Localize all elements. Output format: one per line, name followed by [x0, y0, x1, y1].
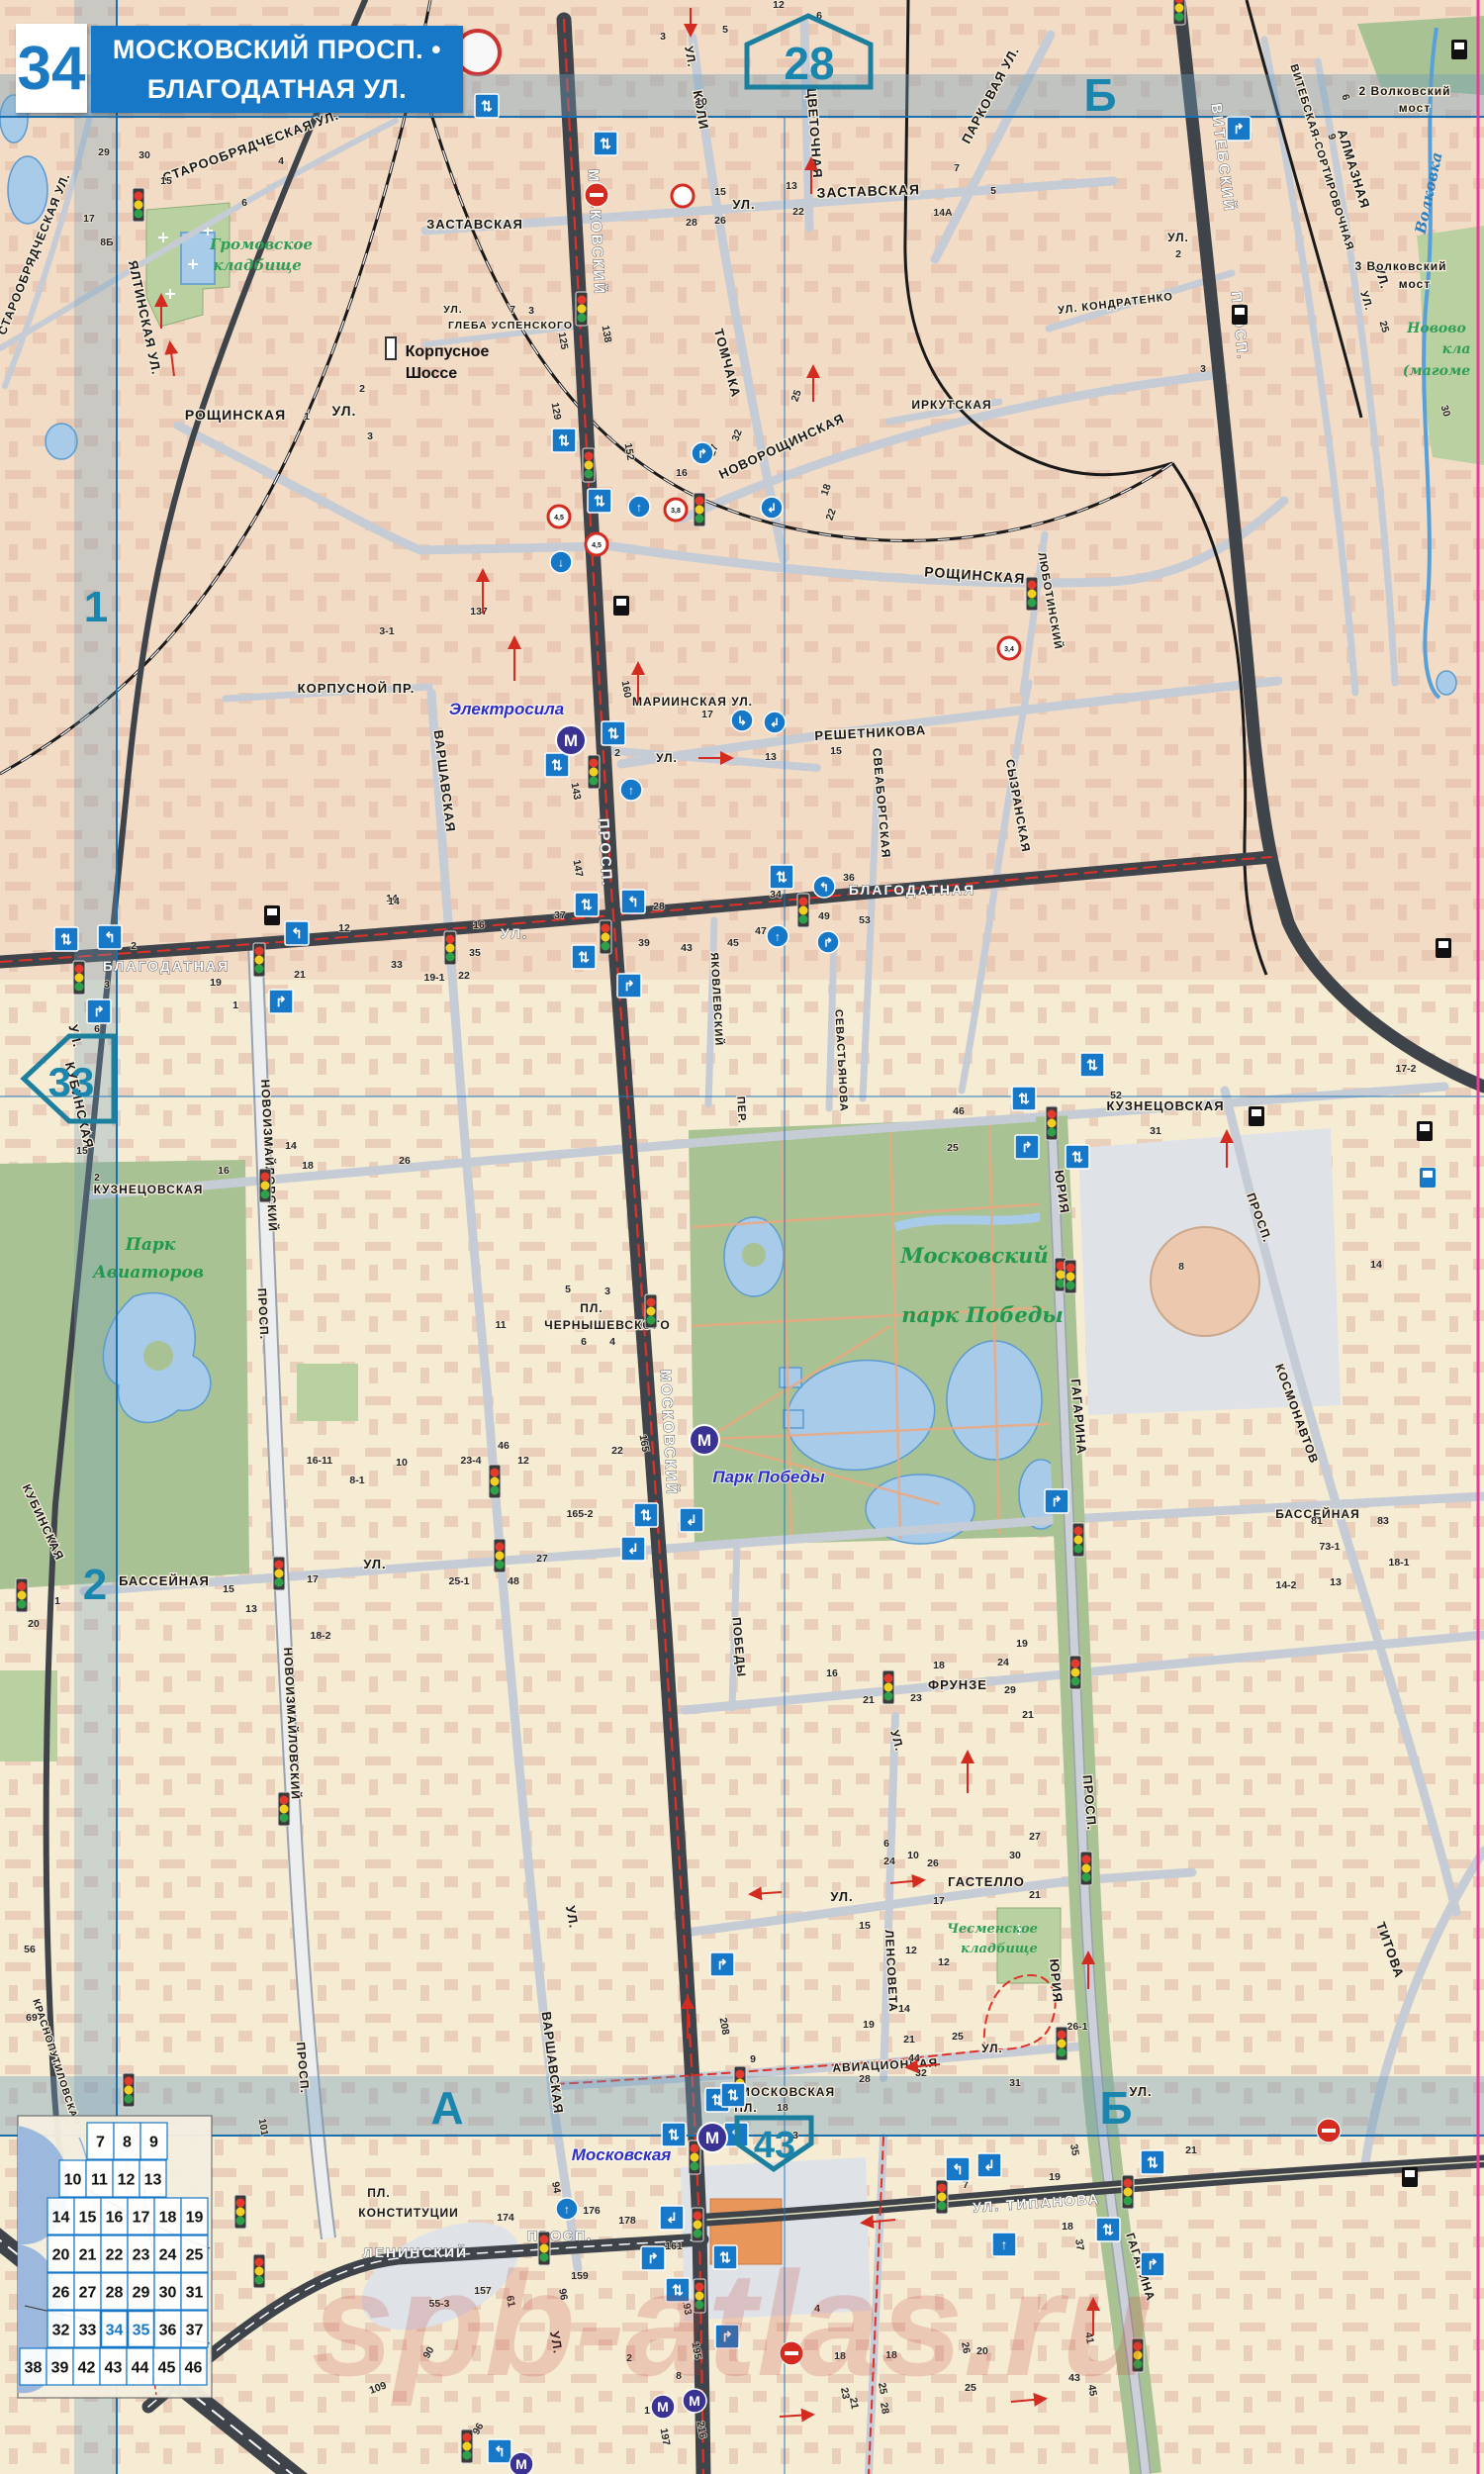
map-label: МАРИИНСКАЯ УЛ. [632, 695, 753, 709]
traffic-light-icon [273, 1557, 285, 1590]
map-label: УЛ. [443, 304, 462, 316]
page-link-left: 33 [48, 1059, 95, 1105]
map-label: БЛАГОДАТНАЯ [103, 958, 230, 974]
map-label: кла [1442, 341, 1471, 357]
house-number: 17 [307, 1573, 319, 1585]
direction-sign-glyph: ↑ [564, 2203, 570, 2217]
traffic-light-red [125, 2077, 134, 2086]
house-number: 8Б [100, 237, 114, 248]
map-label: ПЛ. [580, 1301, 603, 1315]
house-number: 24 [997, 1657, 1009, 1668]
house-number: 36 [843, 872, 855, 884]
inset-cell-number: 31 [186, 2285, 204, 2302]
lane-sign-icon: ↱ [1227, 117, 1251, 141]
house-number: 14 [285, 1140, 297, 1152]
grid-row-2: 2 [83, 1561, 107, 1609]
atlas-page: СТАРООБРЯДЧЕСКАЯ УЛ.СТАРООБРЯДЧЕСКАЯ УЛ.… [0, 0, 1484, 2474]
traffic-light-red [261, 1173, 270, 1182]
direction-sign-icon: ↑ [620, 779, 642, 801]
house-number: 18 [777, 2102, 788, 2114]
lane-sign-glyph: ⇅ [600, 136, 611, 151]
traffic-light-icon [278, 1792, 290, 1826]
restriction-sign-ring [672, 185, 694, 207]
traffic-light-red [496, 1543, 505, 1552]
traffic-light-yellow [125, 2086, 134, 2095]
direction-sign-icon: ↱ [817, 931, 839, 953]
house-number: 12 [905, 1945, 917, 1956]
traffic-light-icon [253, 2254, 265, 2288]
house-number: 18 [933, 1660, 945, 1671]
map-label: УЛ. [981, 2042, 1003, 2055]
direction-sign-icon: ↓ [550, 551, 572, 573]
house-number: 8-1 [349, 1475, 364, 1486]
inset-cell-number: 12 [118, 2172, 136, 2189]
map-label: Парк Победы [712, 1468, 825, 1486]
house-number: 20 [28, 1618, 40, 1630]
map-label: УЛ. [656, 751, 678, 765]
map-label: КОНСТИТУЦИИ [358, 2206, 458, 2220]
map-label: Московский [899, 1243, 1049, 1268]
direction-sign-glyph: ↑ [628, 784, 634, 798]
lane-sign-glyph: ↲ [983, 2157, 995, 2173]
restriction-sign-value: 3,4 [1004, 646, 1014, 653]
traffic-light-icon [253, 943, 265, 977]
map-label: БАССЕЙНАЯ [119, 1573, 210, 1588]
house-number: 5 [990, 185, 996, 197]
traffic-light-icon [797, 894, 809, 927]
house-number: 49 [818, 910, 830, 922]
lane-sign-icon: ⇅ [634, 1503, 658, 1527]
inset-cell-number: 33 [79, 2323, 97, 2339]
house-number: 47 [755, 925, 767, 937]
gas-pump-window [1420, 1124, 1430, 1131]
inset-cell-number: 42 [78, 2360, 96, 2377]
inset-cell-number: 23 [133, 2247, 150, 2264]
map-label: ГЛЕБА УСПЕНСКОГО [448, 320, 573, 332]
direction-sign-icon: ↑ [767, 925, 788, 947]
traffic-light-green [496, 1561, 505, 1570]
metro-station-icon: М [690, 1425, 719, 1455]
traffic-light-yellow [691, 2153, 699, 2162]
traffic-light-yellow [1067, 1273, 1075, 1282]
house-number: 73-1 [1319, 1541, 1340, 1553]
inset-cell-number: 46 [185, 2360, 203, 2377]
gas-station-icon [613, 596, 629, 616]
traffic-light-yellow [578, 305, 587, 314]
traffic-light-icon [1069, 1656, 1081, 1689]
metro-m-glyph: М [515, 2456, 527, 2472]
house-number: 16 [676, 467, 688, 479]
house-number: 5 [565, 1284, 571, 1295]
house-number: 17 [83, 213, 95, 225]
gas-pump-window [1454, 43, 1464, 49]
house-number: 19 [863, 2019, 875, 2031]
lane-sign-icon: ↱ [1015, 1135, 1039, 1159]
traffic-light-icon [73, 961, 85, 995]
lane-sign-glyph: ↱ [275, 994, 287, 1009]
traffic-light-green [799, 915, 808, 924]
traffic-light-yellow [261, 1182, 270, 1190]
traffic-light-red [1057, 1262, 1066, 1271]
map-label: Электросила [449, 700, 564, 718]
lane-sign-glyph: ⇅ [640, 1507, 652, 1523]
traffic-light-green [255, 2276, 264, 2285]
house-number: 35 [469, 947, 481, 959]
house-number: 12 [338, 922, 350, 934]
direction-sign-glyph: ↱ [697, 447, 707, 461]
grid-letter-b-bottom: Б [1099, 2082, 1132, 2134]
house-number: 3 [528, 305, 534, 317]
house-number: 21 [1185, 2144, 1197, 2156]
house-number: 176 [583, 2205, 601, 2217]
house-number: 2 [359, 383, 365, 395]
inset-cell-number: 38 [25, 2360, 43, 2377]
traffic-light-green [1048, 1128, 1057, 1137]
lane-sign-icon: ↱ [710, 1952, 734, 1976]
lane-sign-glyph: ⇅ [551, 757, 563, 773]
house-number: 18-2 [310, 1630, 330, 1642]
traffic-light-yellow [275, 1570, 284, 1578]
inset-cell-number: 19 [186, 2210, 204, 2227]
house-number: 15 [160, 175, 172, 187]
traffic-light-red [75, 965, 84, 974]
traffic-light-green [694, 2230, 702, 2238]
house-number: 137 [470, 606, 488, 618]
traffic-light-red [135, 192, 143, 201]
traffic-light-red [275, 1561, 284, 1570]
inset-cell-number: 44 [132, 2360, 149, 2377]
lane-sign-glyph: ⇅ [1018, 1091, 1030, 1106]
house-number: 16 [218, 1165, 230, 1177]
house-number: 25-1 [448, 1575, 469, 1587]
page-title-line1: МОСКОВСКИЙ ПРОСП. • [91, 30, 463, 69]
direction-sign-icon: ↲ [764, 712, 786, 733]
house-number: 12 [773, 0, 785, 11]
page-number: 34 [16, 24, 87, 113]
traffic-light-green [691, 2162, 699, 2171]
direction-sign-glyph: ↱ [823, 936, 833, 950]
house-number: 8 [1178, 1261, 1184, 1273]
house-number: 19-1 [423, 972, 444, 984]
traffic-light-green [585, 470, 594, 479]
lane-sign-glyph: ⇅ [776, 869, 788, 885]
direction-sign-icon: ↲ [761, 497, 783, 519]
house-number: 21 [863, 1694, 875, 1706]
traffic-light-yellow [446, 944, 455, 953]
restriction-sign-icon: 4,5 [586, 533, 607, 555]
map-label: кладбище [213, 256, 302, 274]
traffic-light-red [255, 2258, 264, 2267]
page-number-text: 34 [18, 34, 86, 104]
inset-cell-number: 22 [106, 2247, 124, 2264]
grid-row-1: 1 [84, 583, 108, 631]
traffic-light-red [236, 2199, 245, 2208]
traffic-light-yellow [884, 1683, 893, 1692]
traffic-light-red [647, 1298, 656, 1307]
lane-sign-icon: ⇅ [1066, 1145, 1089, 1169]
house-number: 29 [1004, 1684, 1016, 1696]
house-number: 27 [1029, 1831, 1041, 1843]
lane-sign-glyph: ⇅ [481, 98, 493, 114]
traffic-light-yellow [1058, 2040, 1067, 2048]
direction-sign-glyph: ↑ [775, 930, 781, 944]
house-number: 83 [1377, 1515, 1389, 1527]
inset-cell-number: 17 [133, 2210, 150, 2227]
inset-cell-number: 15 [79, 2210, 97, 2227]
house-number: 18 [1062, 2221, 1073, 2233]
house-number: 10 [907, 1850, 919, 1861]
map-label: Чесменское [947, 1922, 1038, 1937]
house-number: 5 [722, 24, 728, 36]
map-label: ПЕР. [734, 1096, 747, 1125]
traffic-light-green [1124, 2197, 1133, 2206]
lane-sign-glyph: ⇅ [727, 2087, 739, 2103]
traffic-light-yellow [1028, 590, 1037, 599]
house-number: 16-11 [307, 1455, 332, 1467]
house-number: 3 [660, 31, 666, 43]
traffic-light-red [1048, 1110, 1057, 1119]
direction-sign-glyph: ↑ [636, 501, 642, 515]
traffic-light-icon [1173, 0, 1185, 25]
house-number: 35 [1067, 2143, 1081, 2157]
traffic-light-icon [461, 2429, 473, 2463]
house-number: 15 [223, 1583, 234, 1595]
house-number: 24 [883, 1855, 895, 1867]
inset-cell-number: 25 [186, 2247, 204, 2264]
house-number: 16 [826, 1667, 838, 1679]
traffic-light-icon [1056, 2027, 1067, 2060]
page-title-line2: БЛАГОДАТНАЯ УЛ. [91, 69, 463, 109]
metro-m-glyph: М [705, 2129, 719, 2147]
lane-sign-glyph: ⇅ [558, 432, 570, 448]
lane-sign-icon: ↱ [617, 974, 641, 998]
lane-sign-glyph: ⇅ [60, 931, 72, 947]
house-number: 27 [536, 1553, 548, 1565]
traffic-light-red [491, 1469, 500, 1477]
house-number: 22 [611, 1445, 623, 1457]
lane-sign-icon: ⇅ [1141, 2150, 1164, 2174]
map-label: ИРКУТСКАЯ [911, 398, 991, 412]
traffic-light-red [694, 2212, 702, 2221]
inset-cell-number: 9 [149, 2135, 158, 2151]
direction-sign-icon: ↰ [813, 876, 835, 898]
traffic-light-green [280, 1814, 289, 1823]
restriction-sign-icon [672, 185, 694, 207]
map-label: 3 Волковский [1354, 259, 1446, 273]
inset-cell-number: 30 [159, 2285, 177, 2302]
traffic-light-icon [123, 2073, 135, 2107]
traffic-light-yellow [1082, 1864, 1091, 1873]
lane-sign-icon: ⇅ [662, 2123, 686, 2146]
lane-sign-icon: ⇅ [594, 132, 617, 155]
map-label: УЛ. [332, 403, 357, 419]
map-label: УЛ. [830, 1889, 853, 1904]
house-number: 1 [54, 1595, 60, 1607]
inset-cell-number: 8 [123, 2135, 132, 2151]
house-number: 14А [933, 207, 953, 219]
lane-sign-glyph: ⇅ [578, 949, 590, 965]
gas-station-icon [1417, 1121, 1433, 1141]
inset-cell-number: 13 [144, 2172, 162, 2189]
house-number: 2 [131, 940, 137, 952]
gas-pump-window [267, 908, 277, 915]
traffic-light-green [884, 1692, 893, 1701]
house-number: 178 [618, 2215, 636, 2227]
skk-building [1151, 1227, 1259, 1336]
traffic-light-green [261, 1190, 270, 1199]
map-label: парк Победы [901, 1302, 1063, 1327]
direction-sign-icon: ↱ [692, 442, 713, 464]
lane-sign-icon: ↰ [285, 921, 309, 945]
house-number: 34 [770, 889, 782, 901]
city-map: СТАРООБРЯДЧЕСКАЯ УЛ.СТАРООБРЯДЧЕСКАЯ УЛ.… [0, 0, 1484, 2474]
lane-sign-icon: ↱ [1045, 1489, 1068, 1513]
lane-sign-icon: ↲ [660, 2206, 684, 2230]
traffic-light-icon [444, 931, 456, 965]
lane-sign-glyph: ↰ [494, 2443, 506, 2459]
traffic-light-green [938, 2202, 947, 2211]
metro-station-icon: М [697, 2123, 727, 2152]
lane-sign-glyph: ⇅ [1086, 1057, 1098, 1073]
house-number: 46 [953, 1105, 965, 1117]
traffic-light-green [236, 2217, 245, 2226]
lane-sign-glyph: ⇅ [1102, 2222, 1114, 2237]
house-number: 9 [750, 2053, 756, 2065]
traffic-light-icon [133, 188, 144, 222]
lane-sign-icon: ⇅ [552, 428, 576, 452]
traffic-light-green [75, 983, 84, 992]
metro-m-glyph: М [697, 1431, 711, 1450]
traffic-light-green [647, 1316, 656, 1325]
house-number: 21 [1029, 1889, 1041, 1901]
map-label: МОСКОВСКАЯ [740, 2085, 835, 2099]
traffic-light-yellow [491, 1477, 500, 1486]
traffic-light-green [275, 1578, 284, 1587]
traffic-light-green [1057, 1280, 1066, 1288]
lane-sign-icon: ↰ [98, 925, 122, 949]
lane-sign-icon: ↲ [680, 1508, 703, 1532]
traffic-light-yellow [696, 506, 704, 515]
map-label: Громовское [209, 236, 313, 253]
direction-sign-icon: ↑ [628, 496, 650, 518]
house-number: 4 [609, 1336, 615, 1348]
traffic-light-yellow [694, 2221, 702, 2230]
traffic-light-green [135, 210, 143, 219]
house-number: 31 [1009, 2077, 1021, 2089]
house-number: 21 [903, 2034, 915, 2046]
traffic-light-red [1058, 2031, 1067, 2040]
house-number: 1 [304, 411, 310, 423]
house-number: 29 [98, 146, 110, 158]
restriction-sign-value: 4,5 [554, 515, 564, 522]
lane-sign-glyph: ↲ [666, 2210, 678, 2226]
traffic-light-red [938, 2184, 947, 2193]
map-label: 2 Волковский [1358, 84, 1450, 98]
traffic-light-red [1124, 2179, 1133, 2188]
map-label: УЛ. [1167, 231, 1189, 244]
house-number: 30 [1009, 1850, 1021, 1861]
direction-sign-icon: ↑ [556, 2198, 578, 2220]
traffic-light-icon [588, 755, 600, 789]
traffic-light-green [590, 777, 599, 786]
house-number: 33 [391, 959, 403, 971]
inset-cell-number: 32 [52, 2323, 70, 2339]
traffic-light-icon [692, 2208, 703, 2241]
traffic-light-icon [645, 1294, 657, 1328]
inset-cell-number: 36 [159, 2323, 177, 2339]
inset-cell-number: 18 [159, 2210, 177, 2227]
map-label: УЛ. [1129, 2084, 1152, 2099]
direction-sign-glyph: ↲ [767, 502, 777, 516]
lane-sign-icon: ⇅ [721, 2083, 745, 2107]
traffic-light-green [1058, 2048, 1067, 2057]
lane-sign-glyph: ↰ [627, 894, 639, 909]
traffic-light-red [1071, 1660, 1080, 1668]
lane-sign-icon: ⇅ [588, 489, 611, 513]
house-number: 2 [614, 747, 620, 759]
railway-station-icon [386, 337, 396, 359]
lane-sign-glyph: ↱ [1051, 1493, 1063, 1509]
house-number: 10 [396, 1457, 408, 1469]
inset-cell-number: 14 [52, 2210, 70, 2227]
map-label: УЛ. [501, 925, 528, 941]
house-number: 28 [653, 901, 665, 912]
lane-sign-icon: ⇅ [1080, 1053, 1104, 1077]
traffic-light-red [590, 759, 599, 768]
map-label: Новово [1406, 321, 1466, 336]
gas-pump-window [616, 599, 626, 606]
traffic-light-icon [689, 2141, 700, 2174]
inset-cell-number: 11 [91, 2172, 108, 2189]
house-number: 174 [497, 2212, 514, 2224]
house-number: 37 [554, 909, 566, 921]
lane-sign-icon: ⇅ [770, 865, 793, 889]
traffic-light-red [799, 898, 808, 906]
traffic-light-green [602, 942, 610, 951]
inset-cell-number: 10 [64, 2172, 82, 2189]
no-entry-bar [1322, 2129, 1336, 2133]
traffic-light-yellow [1074, 1536, 1083, 1545]
house-number: 52 [1110, 1090, 1122, 1101]
house-number: 26 [399, 1155, 411, 1167]
gas-station-icon [1436, 938, 1451, 958]
lane-sign-glyph: ⇅ [594, 493, 605, 509]
direction-sign-glyph: ↳ [737, 714, 747, 728]
lane-sign-icon: ⇅ [1012, 1087, 1036, 1110]
traffic-light-icon [489, 1465, 501, 1498]
house-number: 12 [938, 1956, 950, 1968]
traffic-light-icon [1072, 1523, 1084, 1557]
traffic-light-red [280, 1796, 289, 1805]
house-number: 81 [1311, 1515, 1323, 1527]
restriction-sign-value: 4,5 [592, 542, 602, 549]
page-link-top: 28 [784, 38, 834, 89]
gas-station-icon [264, 905, 280, 925]
house-number: 26 [714, 215, 726, 227]
traffic-light-icon [1046, 1106, 1058, 1140]
house-number: 39 [638, 937, 650, 949]
house-number: 26-1 [1067, 2021, 1087, 2033]
map-label: КУЗНЕЦОВСКАЯ [94, 1183, 204, 1196]
house-number: 18-1 [1388, 1557, 1409, 1569]
house-number: 21 [1022, 1709, 1034, 1721]
index-inset-map: 7891011121314151617181920212223242526272… [18, 2116, 212, 2398]
gas-pump-window [1252, 1109, 1261, 1116]
house-number: 15 [714, 186, 726, 198]
map-label: ЗАСТАВСКАЯ [426, 217, 523, 232]
house-number: 3 [1200, 363, 1206, 375]
grid-letter-a-bottom: А [430, 2082, 463, 2134]
